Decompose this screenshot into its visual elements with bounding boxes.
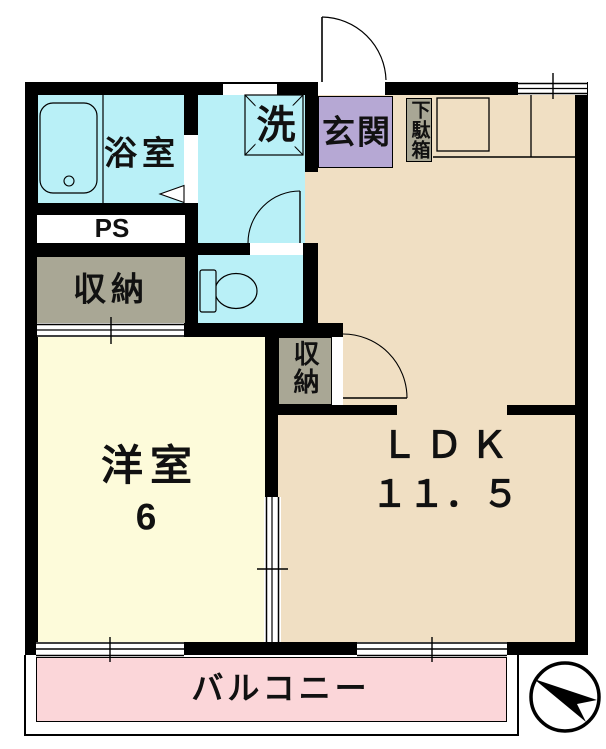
storage-ldk-door-icon xyxy=(332,334,407,405)
western-room-label: 洋室 xyxy=(101,445,199,487)
pipe-space-label: PS xyxy=(95,215,130,241)
window-western-room-icon xyxy=(36,637,184,662)
washroom-door-icon xyxy=(248,191,303,255)
ldk-label: ＬＤＫ xyxy=(381,427,516,464)
balcony-label: バルコニー xyxy=(191,672,370,704)
bathroom-label: 浴室 xyxy=(104,137,180,170)
window-ldk-icon xyxy=(357,637,507,662)
sliding-door-western-ldk-icon xyxy=(257,497,288,642)
bathtub-icon xyxy=(40,95,103,203)
shoe-cabinet-label: 下駄箱 xyxy=(410,100,429,160)
window-top-washroom-icon xyxy=(223,84,277,95)
floor-plan: 浴室 洗 玄関 下駄箱 PS 収納 収納 洋室 6 ＬＤＫ １１．５ バルコニー xyxy=(0,0,606,749)
window-top-kitchen-icon xyxy=(518,73,587,99)
entrance-label: 玄関 xyxy=(322,116,392,149)
entrance-door-icon xyxy=(318,17,386,95)
closet-door-icon xyxy=(37,317,184,344)
north-arrow-icon xyxy=(531,663,599,731)
storage-ldk-label: 収納 xyxy=(292,340,318,396)
western-room-size: 6 xyxy=(136,499,157,536)
toilet-icon xyxy=(200,270,257,312)
kitchen-counter-icon xyxy=(433,95,575,157)
washer-label: 洗 xyxy=(255,106,296,147)
storage-hall-label: 収納 xyxy=(73,273,149,306)
ldk-size: １１．５ xyxy=(371,476,519,513)
